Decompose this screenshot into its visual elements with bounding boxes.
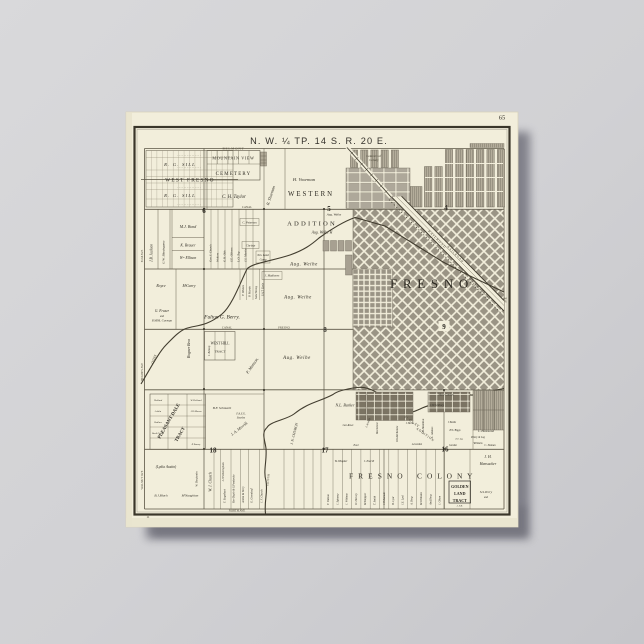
svg-text:T. Watson: T. Watson [327,494,330,505]
svg-text:TRACT: TRACT [453,498,467,503]
svg-text:J.O.Samule: J.O.Samule [383,491,386,505]
svg-text:CEMETERY: CEMETERY [216,172,252,177]
svg-text:BELMONT: BELMONT [223,146,245,150]
svg-text:WESTERN: WESTERN [288,191,334,198]
svg-text:Blackstone: Blackstone [376,421,379,434]
svg-text:S.S.Terry: S.S.Terry [480,490,493,494]
svg-text:WALNUT AVE: WALNUT AVE [140,470,144,489]
svg-text:65: 65 [499,115,506,122]
svg-text:J. Purcill: J. Purcill [364,460,375,463]
svg-text:J.H.Hamilton: J.H.Hamilton [422,418,425,434]
svg-text:Williams: Williams [473,442,482,445]
svg-text:Rogner Bros: Rogner Bros [187,338,191,359]
svg-text:W.J.Bopker: W.J.Bopker [335,460,349,463]
svg-text:B.F. Schmartt: B.F. Schmartt [213,406,233,410]
svg-text:LAND: LAND [454,491,465,496]
svg-text:Searles: Searles [237,417,245,420]
svg-text:WEST FRESNO: WEST FRESNO [165,178,215,184]
svg-text:Wᵐ Ellison: Wᵐ Ellison [180,256,197,260]
svg-text:CANAL: CANAL [222,325,233,329]
svg-text:J. F. Church: J. F. Church [261,489,264,503]
svg-text:Mary·Gordon: Mary·Gordon [437,394,454,397]
svg-text:J.S. Martin: J.S. Martin [244,248,248,262]
svg-text:HUGHES AVE: HUGHES AVE [140,363,144,382]
svg-text:J.H.Mason: J.H.Mason [191,410,203,413]
svg-text:P. Martin: P. Martin [248,286,252,298]
svg-text:ELM AVE: ELM AVE [140,249,144,262]
svg-text:C O L O N Y: C O L O N Y [417,472,474,481]
svg-text:Aug. Weihe: Aug. Weihe [326,213,342,217]
svg-text:NORTH AVE: NORTH AVE [229,509,246,513]
svg-text:5: 5 [327,205,331,213]
svg-text:W. Benjamin: W. Benjamin [195,471,199,487]
svg-text:. . . . . . . . . . . . . . .: . . . . . . . . . . . . . . . [177,185,200,189]
svg-text:J. Olsen: J. Olsen [439,495,442,505]
svg-text:And.Berg: And.Berg [429,494,432,506]
svg-text:Basil Couch: Basil Couch [152,432,165,435]
svg-text:Colony: Colony [369,158,379,162]
svg-text:Hansucker: Hansucker [479,462,497,466]
svg-text:L.O. Top: L.O. Top [237,251,241,263]
svg-text:(Lydia Austin): (Lydia Austin) [156,465,177,469]
svg-text:Royce: Royce [155,284,166,288]
svg-text:J. Spinney: J. Spinney [336,493,339,505]
svg-text:Wm.McKenzie: Wm.McKenzie [396,425,399,442]
svg-text:M.Klepper: M.Klepper [364,492,367,506]
svg-text:6: 6 [202,207,206,215]
svg-text:AVE: AVE [505,297,508,303]
svg-text:WEST HILL: WEST HILL [211,342,230,346]
svg-text:F. Engelhart: F. Engelhart [224,489,227,504]
svg-text:H. Voorman: H. Voorman [292,177,316,182]
svg-text:P.MᵗM. Corman: P.MᵗM. Corman [151,319,173,323]
svg-text:Camp: Camp [260,259,267,262]
svg-text:S.A.T. Early: S.A.T. Early [262,282,265,296]
svg-text:G. Greenleaf: G. Greenleaf [251,487,254,503]
svg-text:R. G. SILL: R. G. SILL [163,193,196,198]
svg-text:A. Berg: A. Berg [411,496,414,506]
svg-text:B.J.Bloch: B.J.Bloch [154,494,167,498]
svg-text:C. H. Taylor: C. H. Taylor [222,195,246,200]
svg-text:Aug. Weihe: Aug. Weihe [282,356,311,361]
svg-text:G.H. Otis: G.H. Otis [223,250,227,262]
svg-text:J.Wards: J.Wards [448,421,456,424]
svg-text:S.E. Olivers: S.E. Olivers [230,247,234,262]
svg-text:J. Ramsay: J. Ramsay [208,344,211,356]
svg-text:11: 11 [146,515,150,519]
svg-text:FRESNO: FRESNO [390,276,474,291]
svg-text:N.L. Barker: N.L. Barker [335,403,355,408]
svg-text:M.Williams: M.Williams [420,492,423,506]
svg-text:MᵗNaughton: MᵗNaughton [181,494,199,498]
svg-text:K. Brauer: K. Brauer [179,244,196,248]
svg-text:W·Holland: W·Holland [191,399,203,402]
svg-text:Aug. Weihe: Aug. Weihe [289,263,318,268]
svg-text:J.B. Jackson: J.B. Jackson [150,244,154,262]
svg-text:Christy: Christy [246,244,256,248]
svg-text:18: 18 [210,447,218,455]
svg-text:T. Smith: T. Smith [374,495,377,505]
svg-text:H. Lyal: H. Lyal [392,496,395,506]
svg-text:Wolters: Wolters [216,252,220,262]
svg-text:GOLDEN: GOLDEN [451,484,468,489]
svg-text:Nev. Land: Nev. Land [256,254,269,257]
svg-text:Redlaw: Redlaw [153,421,162,424]
svg-text:A.T.K.: A.T.K. [456,505,463,508]
svg-text:J.W.Gribney: J.W.Gribney [430,404,445,407]
svg-text:Geo.Rowe: Geo.Rowe [343,424,355,427]
svg-text:8: 8 [323,326,327,334]
svg-text:Geo S. Church: Geo S. Church [209,244,213,262]
svg-text:7.7. Co: 7.7. Co [455,438,463,441]
svg-text:R.Yancey: R.Yancey [191,443,202,446]
svg-text:Pixley & Log: Pixley & Log [470,436,486,439]
svg-text:CANAL: CANAL [242,205,253,209]
svg-text:Acklin & Terry: Acklin & Terry [242,486,245,504]
svg-text:Gordon: Gordon [449,444,458,447]
svg-text:MᵗGarry: MᵗGarry [181,284,195,288]
svg-text:M.J. Bond: M.J. Bond [179,224,198,229]
svg-text:G.W. Blasingame: G.W. Blasingame [162,240,166,264]
svg-text:H.S.·Biggs: H.S.·Biggs [448,429,460,432]
svg-text:C. Peterson: C. Peterson [242,221,257,225]
svg-text:F. Wickes: F. Wickes [241,284,245,297]
svg-text:MOUNTAIN VIEW: MOUNTAIN VIEW [212,156,254,161]
svg-text:N. W. ¼ TP. 14 S. R. 20 E.: N. W. ¼ TP. 14 S. R. 20 E. [250,136,388,146]
svg-text:R. G. SILL: R. G. SILL [163,162,196,167]
svg-text:9: 9 [442,323,446,331]
svg-text:F.A.S.G.: F.A.S.G. [235,413,246,416]
svg-text:Fulton G. Berry.: Fulton G. Berry. [203,315,240,321]
svg-text:Acklin: Acklin [154,410,162,413]
svg-text:J.Works: J.Works [406,422,414,425]
svg-text:Rev·Doyle & S.Pembroke: Rev·Doyle & S.Pembroke [233,474,236,504]
svg-text:16: 16 [442,446,450,454]
svg-text:Pool: Pool [353,444,359,447]
svg-text:J. H.: J. H. [484,455,491,459]
svg-text:Saml Strong: Saml Strong [255,285,258,299]
svg-text:J.J.Fotheringham: J.J.Fotheringham [222,462,225,481]
svg-text:A.Gordon: A.Gordon [411,443,423,446]
svg-text:4: 4 [444,204,448,212]
svg-text:L. Hammond: L. Hammond [477,429,494,433]
svg-text:. . . . . . . . . . . . . . .: . . . . . . . . . . . . . . . [177,202,200,206]
svg-text:W. Harvey: W. Harvey [355,493,358,505]
svg-text:W. J. Church: W. J. Church [209,472,213,492]
svg-text:FRESNO: FRESNO [278,325,290,329]
svg-text:. . . . . . . . . . . . . . .: . . . . . . . . . . . . . . . [177,153,200,157]
svg-text:Holland: Holland [153,399,163,402]
svg-text:J.S. Lyal: J.S. Lyal [401,495,404,505]
svg-text:L. Alamos: L. Alamos [431,427,434,439]
svg-text:TRACT: TRACT [214,350,226,354]
svg-text:F R E S N O: F R E S N O [349,472,404,481]
svg-text:J. Matthews: J. Matthews [265,274,280,278]
svg-text:C. Naman: C. Naman [484,444,496,447]
svg-text:G. Fraser: G. Fraser [155,309,170,313]
svg-text:Aug. Weihe: Aug. Weihe [283,296,312,301]
svg-text:J. Whitney: J. Whitney [346,492,349,505]
svg-text:ADDITION: ADDITION [287,221,337,228]
svg-text:17: 17 [322,447,330,455]
